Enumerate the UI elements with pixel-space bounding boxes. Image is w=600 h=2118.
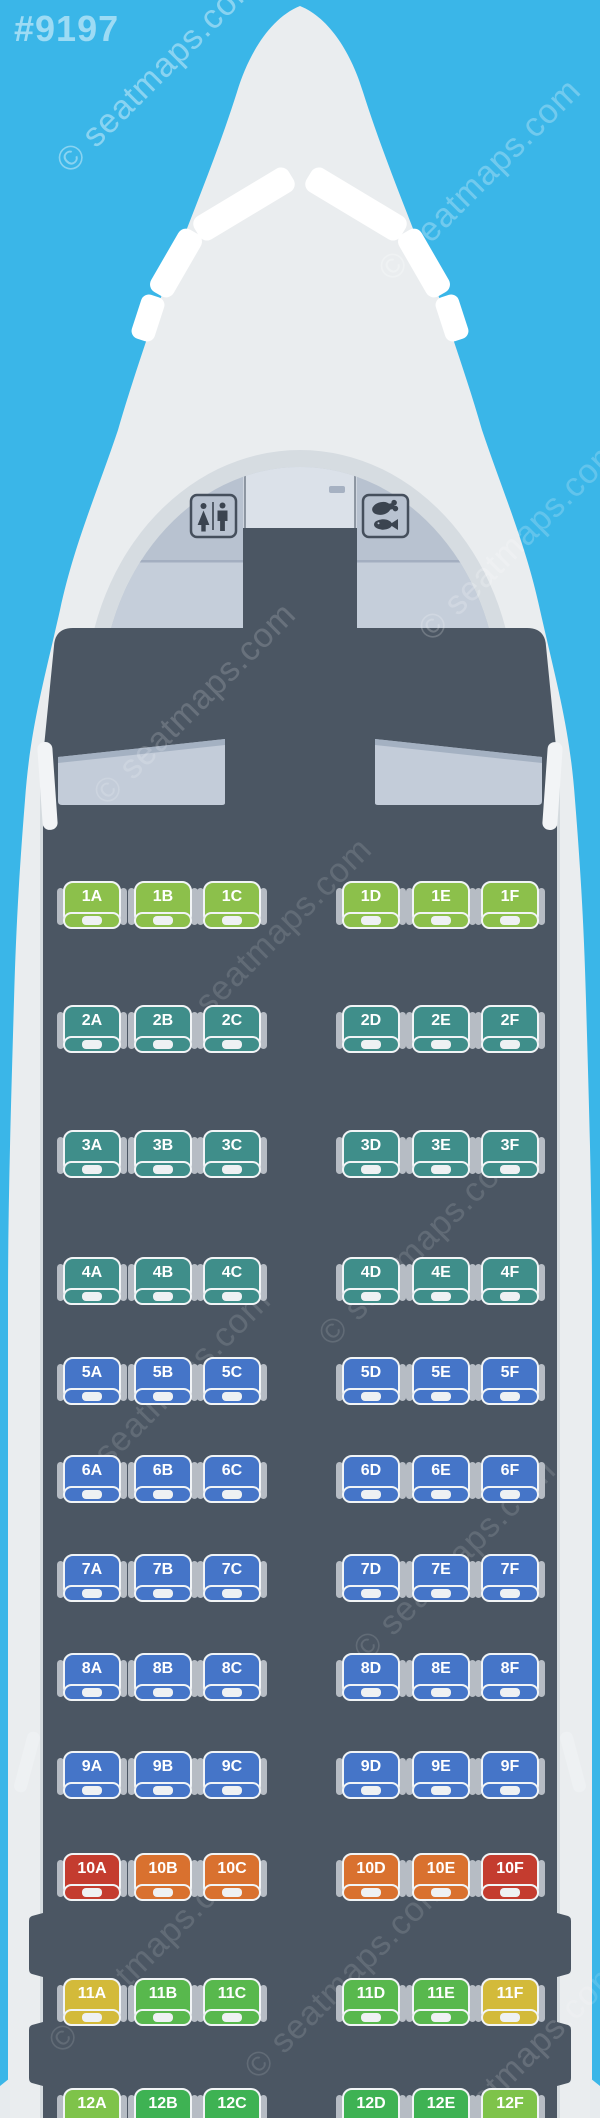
armrest — [538, 1758, 545, 1795]
armrest — [538, 1462, 545, 1499]
armrest — [538, 1660, 545, 1697]
seat-10E[interactable]: 10E — [412, 1853, 470, 1901]
armrest — [260, 1561, 267, 1598]
seat-notch — [82, 1589, 102, 1598]
seat-notch — [153, 1392, 173, 1401]
seat-label: 5C — [203, 1364, 261, 1382]
seat-notch — [222, 1786, 242, 1795]
seat-label: 12F — [481, 2095, 539, 2113]
seat-notch — [361, 1888, 381, 1897]
seat-4F[interactable]: 4F — [481, 1257, 539, 1305]
seat-3D[interactable]: 3D — [342, 1130, 400, 1178]
seat-1B[interactable]: 1B — [134, 881, 192, 929]
seat-notch — [222, 1392, 242, 1401]
seat-5E[interactable]: 5E — [412, 1357, 470, 1405]
seat-label: 10F — [481, 1860, 539, 1878]
armrest — [260, 1660, 267, 1697]
armrest — [120, 1561, 127, 1598]
seat-5C[interactable]: 5C — [203, 1357, 261, 1405]
seat-2F[interactable]: 2F — [481, 1005, 539, 1053]
armrest — [120, 1137, 127, 1174]
seat-label: 3F — [481, 1137, 539, 1155]
armrest — [120, 888, 127, 925]
seat-notch — [431, 1040, 451, 1049]
armrest — [260, 1364, 267, 1401]
seat-notch — [82, 1786, 102, 1795]
seat-label: 8C — [203, 1660, 261, 1678]
seat-notch — [500, 1490, 520, 1499]
seat-label: 12A — [63, 2095, 121, 2113]
seat-label: 7E — [412, 1561, 470, 1579]
seat-notch — [82, 1490, 102, 1499]
seat-notch — [153, 1040, 173, 1049]
seat-notch — [153, 1490, 173, 1499]
seat-label: 4E — [412, 1264, 470, 1282]
seat-3B[interactable]: 3B — [134, 1130, 192, 1178]
armrest — [120, 1985, 127, 2022]
seat-notch — [361, 1786, 381, 1795]
seat-notch — [431, 1490, 451, 1499]
seatmap: #9197 — [0, 0, 600, 2118]
seat-label: 9F — [481, 1758, 539, 1776]
armrest — [120, 1758, 127, 1795]
seat-notch — [431, 1589, 451, 1598]
seat-notch — [431, 1688, 451, 1697]
seat-label: 9D — [342, 1758, 400, 1776]
armrest — [120, 1860, 127, 1897]
armrest — [538, 2095, 545, 2118]
seat-label: 5D — [342, 1364, 400, 1382]
seat-label: 4A — [63, 1264, 121, 1282]
seat-label: 2C — [203, 1012, 261, 1030]
seat-notch — [500, 1589, 520, 1598]
seat-7D[interactable]: 7D — [342, 1554, 400, 1602]
seat-label: 6E — [412, 1462, 470, 1480]
seat-label: 8F — [481, 1660, 539, 1678]
seat-8B[interactable]: 8B — [134, 1653, 192, 1701]
seat-notch — [82, 1292, 102, 1301]
seat-notch — [222, 916, 242, 925]
seat-notch — [361, 1589, 381, 1598]
seat-label: 12D — [342, 2095, 400, 2113]
seat-label: 10B — [134, 1860, 192, 1878]
seat-label: 2A — [63, 1012, 121, 1030]
seat-label: 9A — [63, 1758, 121, 1776]
seat-label: 6F — [481, 1462, 539, 1480]
seat-notch — [153, 1589, 173, 1598]
seat-11D[interactable]: 11D — [342, 1978, 400, 2026]
seat-label: 2F — [481, 1012, 539, 1030]
armrest — [399, 1264, 406, 1301]
seat-1A[interactable]: 1A — [63, 881, 121, 929]
armrest — [538, 1561, 545, 1598]
seat-notch — [153, 1688, 173, 1697]
seat-12A[interactable]: 12A — [63, 2088, 121, 2118]
seat-notch — [431, 1165, 451, 1174]
seat-notch — [153, 1165, 173, 1174]
seat-label: 7B — [134, 1561, 192, 1579]
seat-11C[interactable]: 11C — [203, 1978, 261, 2026]
armrest — [399, 888, 406, 925]
armrest — [399, 1012, 406, 1049]
seat-notch — [153, 1292, 173, 1301]
seat-10F[interactable]: 10F — [481, 1853, 539, 1901]
seat-7C[interactable]: 7C — [203, 1554, 261, 1602]
seat-notch — [82, 1165, 102, 1174]
seat-10B[interactable]: 10B — [134, 1853, 192, 1901]
seat-label: 7F — [481, 1561, 539, 1579]
seat-label: 4F — [481, 1264, 539, 1282]
seat-notch — [153, 916, 173, 925]
seat-notch — [361, 2013, 381, 2022]
seat-label: 8B — [134, 1660, 192, 1678]
seat-11B[interactable]: 11B — [134, 1978, 192, 2026]
armrest — [538, 1860, 545, 1897]
seat-label: 1A — [63, 888, 121, 906]
armrest — [120, 1012, 127, 1049]
armrest — [399, 1137, 406, 1174]
armrest — [399, 1561, 406, 1598]
seat-notch — [82, 1688, 102, 1697]
seat-label: 11C — [203, 1985, 261, 2003]
seat-notch — [361, 1490, 381, 1499]
seat-label: 3D — [342, 1137, 400, 1155]
seat-notch — [431, 2013, 451, 2022]
seat-12C[interactable]: 12C — [203, 2088, 261, 2118]
seat-notch — [222, 2013, 242, 2022]
seat-label: 6C — [203, 1462, 261, 1480]
seat-label: 8E — [412, 1660, 470, 1678]
seat-10C[interactable]: 10C — [203, 1853, 261, 1901]
seat-label: 5E — [412, 1364, 470, 1382]
seat-6D[interactable]: 6D — [342, 1455, 400, 1503]
seat-label: 12E — [412, 2095, 470, 2113]
seat-notch — [431, 916, 451, 925]
seat-5B[interactable]: 5B — [134, 1357, 192, 1405]
armrest — [538, 888, 545, 925]
seat-label: 6B — [134, 1462, 192, 1480]
seat-notch — [500, 1392, 520, 1401]
seat-3F[interactable]: 3F — [481, 1130, 539, 1178]
seat-notch — [82, 1888, 102, 1897]
armrest — [399, 1462, 406, 1499]
seat-2D[interactable]: 2D — [342, 1005, 400, 1053]
seat-12F[interactable]: 12F — [481, 2088, 539, 2118]
armrest — [260, 1758, 267, 1795]
seat-label: 1C — [203, 888, 261, 906]
seat-notch — [222, 1589, 242, 1598]
seat-3E[interactable]: 3E — [412, 1130, 470, 1178]
seat-label: 4D — [342, 1264, 400, 1282]
seat-label: 1D — [342, 888, 400, 906]
seat-label: 12C — [203, 2095, 261, 2113]
seat-notch — [500, 1292, 520, 1301]
seat-notch — [82, 916, 102, 925]
armrest — [399, 1860, 406, 1897]
seat-label: 6A — [63, 1462, 121, 1480]
seat-label: 5A — [63, 1364, 121, 1382]
seat-11E[interactable]: 11E — [412, 1978, 470, 2026]
armrest — [538, 1012, 545, 1049]
seat-2B[interactable]: 2B — [134, 1005, 192, 1053]
seat-label: 3A — [63, 1137, 121, 1155]
armrest — [260, 1264, 267, 1301]
seat-label: 11E — [412, 1985, 470, 2003]
seat-label: 10A — [63, 1860, 121, 1878]
seat-notch — [431, 1392, 451, 1401]
seat-1E[interactable]: 1E — [412, 881, 470, 929]
seat-4B[interactable]: 4B — [134, 1257, 192, 1305]
seat-8A[interactable]: 8A — [63, 1653, 121, 1701]
armrest — [538, 1364, 545, 1401]
seat-8E[interactable]: 8E — [412, 1653, 470, 1701]
seat-9B[interactable]: 9B — [134, 1751, 192, 1799]
seat-label: 2D — [342, 1012, 400, 1030]
seat-notch — [361, 916, 381, 925]
seat-6B[interactable]: 6B — [134, 1455, 192, 1503]
seat-6E[interactable]: 6E — [412, 1455, 470, 1503]
seat-notch — [153, 1888, 173, 1897]
seat-label: 11F — [481, 1985, 539, 2003]
seat-label: 11A — [63, 1985, 121, 2003]
seat-notch — [82, 2013, 102, 2022]
seat-label: 3B — [134, 1137, 192, 1155]
seat-11A[interactable]: 11A — [63, 1978, 121, 2026]
seat-notch — [431, 1292, 451, 1301]
seat-3C[interactable]: 3C — [203, 1130, 261, 1178]
seat-9E[interactable]: 9E — [412, 1751, 470, 1799]
seat-label: 8A — [63, 1660, 121, 1678]
seat-9F[interactable]: 9F — [481, 1751, 539, 1799]
seat-notch — [500, 2013, 520, 2022]
seat-notch — [361, 1040, 381, 1049]
seat-1F[interactable]: 1F — [481, 881, 539, 929]
seat-2A[interactable]: 2A — [63, 1005, 121, 1053]
seat-9D[interactable]: 9D — [342, 1751, 400, 1799]
seat-notch — [361, 1392, 381, 1401]
seat-4D[interactable]: 4D — [342, 1257, 400, 1305]
seat-label: 1F — [481, 888, 539, 906]
armrest — [120, 1264, 127, 1301]
seat-7A[interactable]: 7A — [63, 1554, 121, 1602]
armrest — [260, 1137, 267, 1174]
seat-label: 9B — [134, 1758, 192, 1776]
seat-1C[interactable]: 1C — [203, 881, 261, 929]
armrest — [120, 1364, 127, 1401]
seat-6C[interactable]: 6C — [203, 1455, 261, 1503]
armrest — [260, 1012, 267, 1049]
seat-notch — [82, 1040, 102, 1049]
seat-label: 11D — [342, 1985, 400, 2003]
seat-1D[interactable]: 1D — [342, 881, 400, 929]
seat-notch — [153, 1786, 173, 1795]
armrest — [260, 1860, 267, 1897]
armrest — [120, 1660, 127, 1697]
seat-8D[interactable]: 8D — [342, 1653, 400, 1701]
seat-notch — [500, 1786, 520, 1795]
armrest — [399, 1985, 406, 2022]
seat-3A[interactable]: 3A — [63, 1130, 121, 1178]
seat-label: 7A — [63, 1561, 121, 1579]
seat-notch — [500, 1040, 520, 1049]
armrest — [120, 1462, 127, 1499]
seat-label: 10E — [412, 1860, 470, 1878]
armrest — [399, 2095, 406, 2118]
seat-12E[interactable]: 12E — [412, 2088, 470, 2118]
seat-10A[interactable]: 10A — [63, 1853, 121, 1901]
seat-8C[interactable]: 8C — [203, 1653, 261, 1701]
seat-notch — [500, 1165, 520, 1174]
seat-label: 9C — [203, 1758, 261, 1776]
seat-label: 5B — [134, 1364, 192, 1382]
seat-9A[interactable]: 9A — [63, 1751, 121, 1799]
seat-label: 4C — [203, 1264, 261, 1282]
seat-2E[interactable]: 2E — [412, 1005, 470, 1053]
seat-7F[interactable]: 7F — [481, 1554, 539, 1602]
seat-12B[interactable]: 12B — [134, 2088, 192, 2118]
seat-4A[interactable]: 4A — [63, 1257, 121, 1305]
armrest — [120, 2095, 127, 2118]
seat-6F[interactable]: 6F — [481, 1455, 539, 1503]
seat-notch — [431, 1786, 451, 1795]
armrest — [538, 1137, 545, 1174]
seat-2C[interactable]: 2C — [203, 1005, 261, 1053]
seat-5A[interactable]: 5A — [63, 1357, 121, 1405]
seat-7E[interactable]: 7E — [412, 1554, 470, 1602]
seat-notch — [153, 2013, 173, 2022]
seat-11F[interactable]: 11F — [481, 1978, 539, 2026]
armrest — [399, 1758, 406, 1795]
seat-label: 3E — [412, 1137, 470, 1155]
seat-4C[interactable]: 4C — [203, 1257, 261, 1305]
seat-notch — [222, 1165, 242, 1174]
seat-grid: 1A1B1C1D1E1F2A2B2C2D2E2F3A3B3C3D3E3F4A4B… — [0, 0, 600, 2118]
seat-label: 3C — [203, 1137, 261, 1155]
seat-label: 11B — [134, 1985, 192, 2003]
armrest — [260, 1985, 267, 2022]
seat-9C[interactable]: 9C — [203, 1751, 261, 1799]
seat-notch — [82, 1392, 102, 1401]
seat-5F[interactable]: 5F — [481, 1357, 539, 1405]
seat-label: 10D — [342, 1860, 400, 1878]
seat-label: 1B — [134, 888, 192, 906]
armrest — [538, 1264, 545, 1301]
seat-label: 7C — [203, 1561, 261, 1579]
seat-notch — [222, 1292, 242, 1301]
seat-notch — [500, 1888, 520, 1897]
armrest — [538, 1985, 545, 2022]
seat-label: 5F — [481, 1364, 539, 1382]
seat-label: 6D — [342, 1462, 400, 1480]
seat-notch — [222, 1490, 242, 1499]
seat-label: 10C — [203, 1860, 261, 1878]
seat-label: 4B — [134, 1264, 192, 1282]
armrest — [260, 1462, 267, 1499]
seat-label: 1E — [412, 888, 470, 906]
seat-label: 12B — [134, 2095, 192, 2113]
seat-notch — [431, 1888, 451, 1897]
seat-notch — [361, 1688, 381, 1697]
armrest — [399, 1364, 406, 1401]
seat-notch — [361, 1165, 381, 1174]
seat-label: 2E — [412, 1012, 470, 1030]
seat-12D[interactable]: 12D — [342, 2088, 400, 2118]
seat-10D[interactable]: 10D — [342, 1853, 400, 1901]
seat-notch — [222, 1888, 242, 1897]
seat-notch — [500, 916, 520, 925]
seat-notch — [222, 1040, 242, 1049]
seat-label: 7D — [342, 1561, 400, 1579]
seat-6A[interactable]: 6A — [63, 1455, 121, 1503]
armrest — [260, 2095, 267, 2118]
seat-7B[interactable]: 7B — [134, 1554, 192, 1602]
seat-8F[interactable]: 8F — [481, 1653, 539, 1701]
armrest — [260, 888, 267, 925]
seat-notch — [222, 1688, 242, 1697]
seat-notch — [500, 1688, 520, 1697]
seat-5D[interactable]: 5D — [342, 1357, 400, 1405]
seat-label: 2B — [134, 1012, 192, 1030]
seat-4E[interactable]: 4E — [412, 1257, 470, 1305]
seat-label: 9E — [412, 1758, 470, 1776]
seat-label: 8D — [342, 1660, 400, 1678]
seat-notch — [361, 1292, 381, 1301]
armrest — [399, 1660, 406, 1697]
